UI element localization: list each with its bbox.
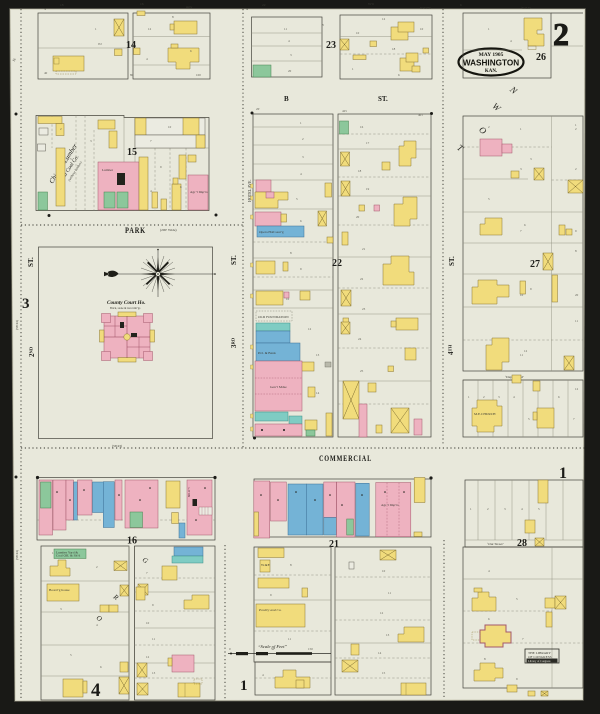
svg-text:Gen’l Mdse: Gen’l Mdse <box>270 385 287 389</box>
svg-text:(200′ Wide): (200′ Wide) <box>160 228 177 232</box>
svg-text:WASHINGTON: WASHINGTON <box>463 59 519 68</box>
svg-text:‘Our Street’: ‘Our Street’ <box>487 541 504 546</box>
svg-text:KAN.: KAN. <box>485 69 498 74</box>
svg-text:11: 11 <box>520 353 523 357</box>
svg-text:17: 17 <box>366 141 370 145</box>
svg-text:12: 12 <box>380 611 384 615</box>
svg-text:12: 12 <box>524 349 528 353</box>
svg-text:20: 20 <box>356 215 360 219</box>
svg-text:‘Sch.h’: ‘Sch.h’ <box>521 5 531 10</box>
svg-text:Opera Hall seat’g: Opera Hall seat’g <box>259 230 284 234</box>
svg-text:PARK: PARK <box>125 226 146 235</box>
svg-text:ST.: ST. <box>230 255 238 265</box>
svg-text:W′6: W′6 <box>368 2 374 6</box>
svg-text:22: 22 <box>332 258 342 269</box>
svg-text:P.O. & Bank: P.O. & Bank <box>258 351 276 355</box>
svg-text:20: 20 <box>575 293 579 297</box>
svg-text:9′2: 9′2 <box>98 42 102 46</box>
svg-text:22: 22 <box>262 3 266 7</box>
svg-text:12: 12 <box>575 387 579 391</box>
svg-text:3: 3 <box>22 296 30 312</box>
svg-text:16: 16 <box>140 2 144 6</box>
svg-text:(56′43): (56′43) <box>112 444 123 448</box>
svg-text:13: 13 <box>316 353 320 357</box>
svg-text:80: 80 <box>130 73 134 77</box>
svg-text:3: 3 <box>44 7 46 11</box>
svg-text:26: 26 <box>536 52 546 63</box>
svg-text:10: 10 <box>420 27 424 31</box>
svg-text:18: 18 <box>60 3 64 7</box>
svg-text:W′STN: W′STN <box>420 6 431 10</box>
svg-text:18: 18 <box>358 169 362 173</box>
svg-text:COMMERCIAL: COMMERCIAL <box>319 454 372 463</box>
svg-text:MAY 1905: MAY 1905 <box>479 52 504 58</box>
svg-text:2: 2 <box>553 16 569 52</box>
svg-text:21: 21 <box>329 539 339 550</box>
svg-text:Library of Congress: Library of Congress <box>528 660 551 663</box>
svg-text:B: B <box>284 95 289 103</box>
svg-text:26′: 26′ <box>256 107 260 111</box>
svg-text:Agr’l Imp’ts: Agr’l Imp’ts <box>190 190 208 194</box>
svg-text:(56′43): (56′43) <box>15 319 19 330</box>
svg-text:25: 25 <box>360 369 364 373</box>
svg-text:16: 16 <box>360 125 364 129</box>
svg-text:Poultry and Co.: Poultry and Co. <box>258 608 282 612</box>
svg-text:13: 13 <box>152 671 156 675</box>
svg-text:22: 22 <box>360 277 364 281</box>
svg-text:18: 18 <box>392 47 396 51</box>
svg-text:12: 12 <box>146 655 150 659</box>
svg-text:OF CONGRESS: OF CONGRESS <box>528 655 552 659</box>
svg-text:4: 4 <box>246 7 248 11</box>
svg-text:50: 50 <box>271 647 275 651</box>
svg-text:24: 24 <box>358 337 362 341</box>
svg-text:401: 401 <box>418 113 423 117</box>
svg-text:11: 11 <box>152 637 155 641</box>
svg-text:10: 10 <box>356 31 360 35</box>
svg-text:150: 150 <box>308 647 313 651</box>
svg-text:12: 12 <box>148 27 152 31</box>
svg-text:Lumber: Lumber <box>102 168 114 172</box>
svg-text:10: 10 <box>168 125 172 129</box>
svg-text:1: 1 <box>559 465 567 482</box>
svg-text:11: 11 <box>288 637 291 641</box>
svg-text:striv: striv <box>186 5 192 9</box>
svg-text:4: 4 <box>91 680 101 701</box>
svg-text:OLD FOUNDATION: OLD FOUNDATION <box>258 315 289 319</box>
svg-text:100: 100 <box>196 73 201 77</box>
svg-text:ST.: ST. <box>27 257 35 267</box>
svg-text:21: 21 <box>362 247 366 251</box>
svg-text:19: 19 <box>366 187 370 191</box>
svg-text:6: 6 <box>460 3 462 7</box>
svg-text:12: 12 <box>382 17 386 21</box>
svg-text:12: 12 <box>308 327 312 331</box>
svg-text:14: 14 <box>316 391 320 395</box>
svg-text:40: 40 <box>44 71 48 75</box>
svg-text:15: 15 <box>127 147 137 158</box>
svg-text:11: 11 <box>575 319 578 323</box>
svg-text:11: 11 <box>388 591 391 595</box>
svg-text:County Court Ho.: County Court Ho. <box>107 300 146 306</box>
svg-text:15: 15 <box>382 671 386 675</box>
svg-text:10: 10 <box>520 293 524 297</box>
svg-text:11: 11 <box>284 27 287 31</box>
svg-text:14: 14 <box>378 651 382 655</box>
svg-text:10: 10 <box>146 621 150 625</box>
svg-text:10: 10 <box>382 569 386 573</box>
svg-text:Agr’l Imp’ts: Agr’l Imp’ts <box>381 503 399 507</box>
svg-text:20: 20 <box>288 69 292 73</box>
svg-text:23: 23 <box>362 307 366 311</box>
svg-text:27: 27 <box>530 259 540 270</box>
svg-text:ST.: ST. <box>378 95 388 103</box>
svg-text:10: 10 <box>286 297 290 301</box>
svg-text:MILLI’Y: MILLI’Y <box>188 487 191 497</box>
svg-text:Board’g house: Board’g house <box>49 588 70 592</box>
svg-text:425: 425 <box>342 109 347 113</box>
svg-text:M.E.CHURCH: M.E.CHURCH <box>474 412 496 416</box>
svg-text:(56′43): (56′43) <box>15 549 19 560</box>
svg-text:13: 13 <box>386 633 390 637</box>
svg-text:Coal Off. & Sh’d: Coal Off. & Sh’d <box>56 554 80 558</box>
svg-text:1: 1 <box>240 678 248 694</box>
svg-text:ST.: ST. <box>448 256 456 266</box>
svg-text:Brick, stone & iron trim’gs: Brick, stone & iron trim’gs <box>110 307 140 310</box>
svg-text:16: 16 <box>127 536 137 547</box>
svg-text:W.&F.: W.&F. <box>261 563 270 567</box>
svg-text:23: 23 <box>326 40 336 51</box>
